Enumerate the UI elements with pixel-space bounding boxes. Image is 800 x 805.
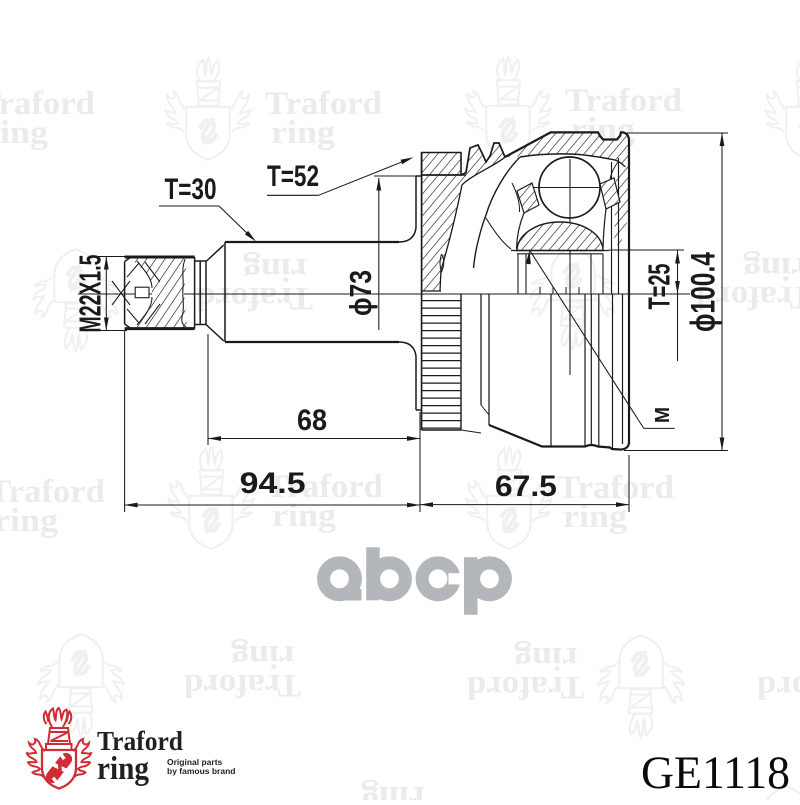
svg-text:T=52: T=52 xyxy=(267,160,319,193)
svg-text:M22X1.5: M22X1.5 xyxy=(73,255,108,333)
svg-text:67.5: 67.5 xyxy=(495,470,557,503)
svg-text:T=25: T=25 xyxy=(642,264,677,310)
svg-text:by famous brand: by famous brand xyxy=(167,766,235,776)
svg-text:ϕ73: ϕ73 xyxy=(343,270,378,316)
svg-text:94.5: 94.5 xyxy=(240,467,306,500)
svg-text:T=30: T=30 xyxy=(165,173,217,206)
svg-text:M: M xyxy=(652,407,674,423)
svg-text:68: 68 xyxy=(297,404,327,437)
svg-text:GE1118: GE1118 xyxy=(641,747,790,799)
svg-text:ring: ring xyxy=(97,751,149,787)
svg-text:ϕ100.4: ϕ100.4 xyxy=(685,252,723,332)
